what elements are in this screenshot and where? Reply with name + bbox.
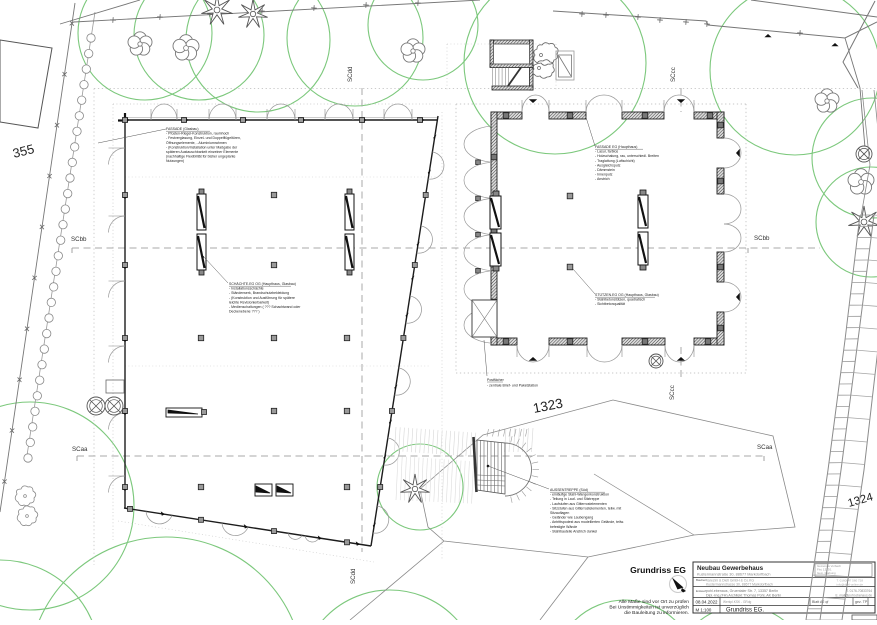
svg-text:T. 0176-70833764: T. 0176-70833764 — [846, 589, 872, 593]
svg-text:- Anstrich: - Anstrich — [595, 177, 610, 181]
svg-text:Werkpl.KSK - GRdg: Werkpl.KSK - GRdg — [723, 600, 752, 604]
svg-text:Neubau Gewerbehaus: Neubau Gewerbehaus — [697, 565, 764, 572]
svg-text:SCdd: SCdd — [347, 66, 354, 82]
svg-text:SCaa: SCaa — [72, 446, 88, 453]
svg-text:- Medienschaltungen ( ??? Scha: - Medienschaltungen ( ??? Schachtwand od… — [229, 305, 301, 309]
svg-text:Kustermannstraße 30, 88677 Mar: Kustermannstraße 30, 88677 Markdorfbach — [697, 573, 770, 577]
svg-text:M 1:100: M 1:100 — [696, 608, 712, 613]
svg-text:- Sitzstufen aus Gitterrostele: - Sitzstufen aus Gitterrostelementen, te… — [550, 506, 621, 510]
svg-text:späteren Austauschbarkeit einz: späteren Austauschbarkeit einzelner Elem… — [166, 150, 238, 154]
svg-text:Deckenebene ??? ): Deckenebene ??? ) — [229, 310, 260, 314]
svg-text:Alle Maße sind vor Ort zu prüf: Alle Maße sind vor Ort zu prüfen — [619, 599, 690, 605]
svg-text:Dipl.-Ing.(FH) Architekt Thoma: Dipl.-Ing.(FH) Architekt Thomas Pohl, AK… — [706, 594, 781, 598]
svg-text:- Pfosten-Riegel-Konstruktion,: - Pfosten-Riegel-Konstruktion, raumhoch — [166, 132, 229, 136]
svg-text:info@dietl-online.de: info@dietl-online.de — [836, 583, 863, 587]
svg-text:SCcc: SCcc — [669, 385, 676, 400]
svg-text:- Geländer wie Laubengang: - Geländer wie Laubengang — [550, 516, 593, 520]
svg-text:leichte Revisionierbarkeit): leichte Revisionierbarkeit) — [229, 300, 269, 304]
svg-text:Sitzauflagen: Sitzauflagen — [550, 511, 569, 515]
svg-text:- Sichtbetonqualität: - Sichtbetonqualität — [595, 302, 625, 306]
svg-text:STÜTZEN.EG OG (Haupthaus, Glas: STÜTZEN.EG OG (Haupthaus, Glasbau) — [595, 293, 659, 297]
svg-text:FASSADE EG (Haupthaus): FASSADE EG (Haupthaus) — [595, 145, 637, 149]
svg-text:Grundriss EG: Grundriss EG — [630, 565, 686, 575]
svg-text:- Innenputz: - Innenputz — [595, 173, 613, 177]
svg-text:Nutzungen): Nutzungen) — [166, 159, 184, 163]
svg-text:die Bauleitung zu informieren.: die Bauleitung zu informieren. — [624, 610, 689, 616]
svg-text:SCbb: SCbb — [71, 236, 87, 243]
svg-text:Kustermannstrasse 30, 88677 Ma: Kustermannstrasse 30, 88677 Markdorfbach — [706, 583, 773, 587]
svg-text:- (Konstruktion und Ausführung: - (Konstruktion und Ausführung für späte… — [229, 296, 295, 300]
svg-text:Bei Unstimmigkeiten ist unverz: Bei Unstimmigkeiten ist unverzüglich — [609, 605, 689, 611]
svg-text:- Installationsschächte: - Installationsschächte — [229, 287, 264, 291]
svg-text:Postfächer: Postfächer — [487, 378, 505, 382]
svg-text:Grundriss EG.: Grundriss EG. — [726, 608, 764, 614]
svg-text:E. mail@pohl.ebenaus.de: E. mail@pohl.ebenaus.de — [835, 594, 872, 598]
svg-text:- Laufstufen aus Gitterrostele: - Laufstufen aus Gitterrostelementen — [550, 502, 607, 506]
svg-text:- Antrittspodest aus modellier: - Antrittspodest aus modellierten Geländ… — [550, 520, 624, 524]
svg-text:- einläufige Stahl-Wangenkonst: - einläufige Stahl-Wangenkonstruktion — [550, 493, 609, 497]
svg-text:- Traglattung (Luftschicht): - Traglattung (Luftschicht) — [595, 159, 635, 163]
svg-text:08.04.2022: 08.04.2022 — [696, 599, 719, 604]
svg-text:FASSADE (Glasbau): FASSADE (Glasbau) — [166, 127, 198, 131]
svg-text:(nachhaltige Flexibilität für: (nachhaltige Flexibilität für bisher ung… — [166, 155, 236, 159]
svg-text:SCcc: SCcc — [670, 67, 677, 82]
svg-text:- Festverglasung, Einzel- und: - Festverglasung, Einzel- und Doppelflüg… — [166, 136, 241, 140]
svg-text:- Stahlbauteile Anstrich dunke: - Stahlbauteile Anstrich dunkel — [550, 529, 597, 533]
svg-text:Blatt A2 qf: Blatt A2 qf — [812, 600, 828, 604]
svg-text:- Teilung in Lauf- und Sitztre: - Teilung in Lauf- und Sitztreppe — [550, 497, 599, 501]
svg-text:SCdd: SCdd — [350, 568, 357, 584]
svg-text:- zentrale Brief- und Paketsta: - zentrale Brief- und Paketstation — [487, 384, 538, 388]
svg-text:SCaa: SCaa — [757, 444, 773, 451]
svg-text:Entwurf: Entwurf — [696, 589, 706, 593]
svg-text:- Holzschalung, rau, unterschi: - Holzschalung, rau, unterschiedl. Breit… — [595, 154, 659, 158]
svg-text:- Stahlbetonstützen, quadratis: - Stahlbetonstützen, quadratisch — [595, 298, 645, 302]
svg-text:gez. TP: gez. TP — [855, 600, 868, 604]
svg-text:- Dämmstein: - Dämmstein — [595, 168, 615, 172]
svg-text:SCbb: SCbb — [754, 235, 770, 242]
svg-text:AUSSENTREPPE (Süd): AUSSENTREPPE (Süd) — [550, 488, 588, 492]
svg-text:pohl.ebenaus, Gruentaler Str.: pohl.ebenaus, Gruentaler Str. 7, 13357 B… — [706, 589, 778, 593]
svg-text:- Ausgleichsputz: - Ausgleichsputz — [595, 163, 621, 167]
svg-text:- Ständerwerk, Brandschutzbekl: - Ständerwerk, Brandschutzbekleidung — [229, 291, 289, 295]
svg-text:- (Konstruktion/Installation u: - (Konstruktion/Installation unter Maßga… — [166, 145, 238, 149]
svg-text:- Lasur, farblos: - Lasur, farblos — [595, 150, 618, 154]
svg-text:Öffnungselemente, - Aluminiumr: Öffnungselemente, - Aluminiumrahmen — [166, 141, 227, 145]
svg-text:befestigte Wände: befestigte Wände — [550, 525, 577, 529]
svg-text:SCHÄCHTE.EG OG (Haupthaus, Gla: SCHÄCHTE.EG OG (Haupthaus, Glasbau) — [229, 282, 296, 286]
